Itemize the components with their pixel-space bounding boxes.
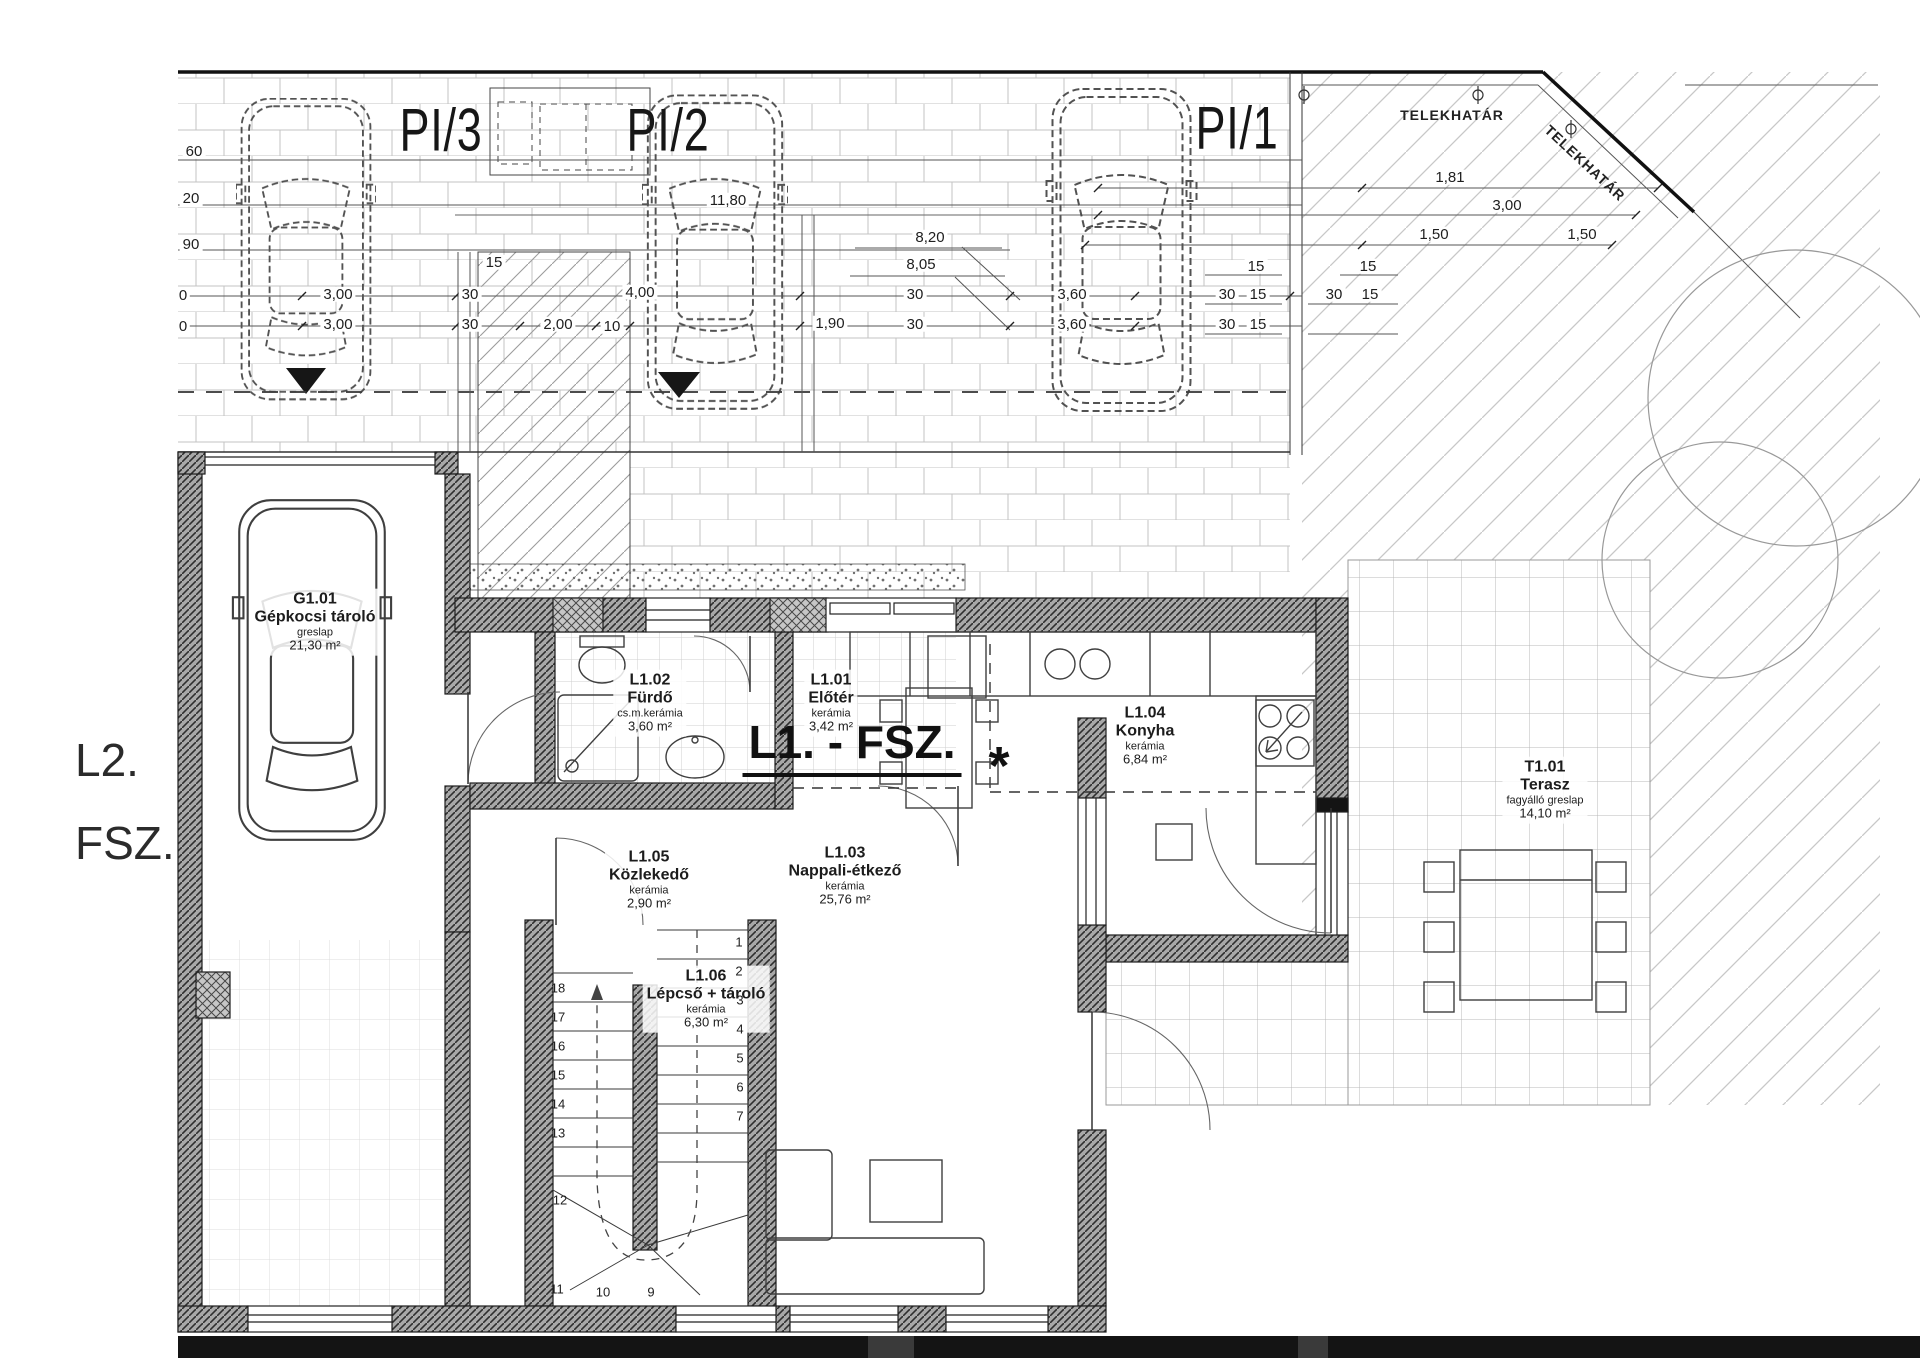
floor-plan-page: PI/3 PI/2 PI/1 TELEKHATÁR TELEKHATÁR L1.… (0, 0, 1920, 1358)
stair-step-number: 18 (551, 982, 565, 995)
stair-step-number: 17 (551, 1011, 565, 1024)
property-boundary-label: TELEKHATÁR (1400, 107, 1504, 123)
dimension-label: 30 (904, 317, 927, 332)
room-area: 21,30 m² (255, 639, 376, 654)
dimension-label: 1,50 (1416, 227, 1451, 242)
stair-step-number: 10 (596, 1286, 610, 1299)
dimension-label: 30 (459, 287, 482, 302)
stair-step-number: 13 (551, 1127, 565, 1140)
dimension-label: 3,60 (1054, 317, 1089, 332)
room-label-terrace: T1.01 Terasz fagyálló greslap 14,10 m² (1502, 757, 1587, 824)
stair-step-number: 14 (551, 1098, 565, 1111)
dimension-label: 3,60 (1054, 287, 1089, 302)
dimension-label: 2,00 (540, 317, 575, 332)
room-label-kitchen: L1.04 Konyha kerámia 6,84 m² (1112, 703, 1179, 770)
dimension-label: 4,00 (622, 285, 657, 300)
dimension-label: 15 (483, 255, 506, 270)
room-name: Gépkocsi tároló (255, 609, 376, 627)
room-label-garage: G1.01 Gépkocsi tároló greslap 21,30 m² (251, 589, 380, 656)
dimension-label: 30 (1216, 317, 1239, 332)
stair-step-number: 3 (736, 994, 743, 1007)
room-area: 3,60 m² (617, 720, 682, 735)
room-name: Lépcső + tároló (647, 986, 766, 1004)
room-code: T1.01 (1506, 759, 1583, 777)
room-name: Előtér (808, 690, 853, 708)
room-code: L1.04 (1116, 705, 1175, 723)
dimension-label: 1,90 (812, 316, 847, 331)
stair-step-number: 11 (550, 1283, 564, 1296)
dimension-label: 30 (904, 287, 927, 302)
dimension-label: 90 (180, 237, 203, 252)
room-label-living-dining: L1.03 Nappali-étkező kerámia 25,76 m² (785, 843, 906, 910)
room-code: L1.01 (808, 672, 853, 690)
dimension-label: 8,05 (903, 257, 938, 272)
room-area: 3,42 m² (808, 720, 853, 735)
stair-step-number: 15 (551, 1069, 565, 1082)
parking-label-pi3: PI/3 (399, 96, 482, 165)
stair-step-number: 4 (736, 1023, 743, 1036)
dimension-label: 20 (180, 191, 203, 206)
stair-step-number: 9 (647, 1286, 654, 1299)
dimension-label: 15 (1247, 317, 1270, 332)
stair-step-number: 7 (736, 1110, 743, 1123)
kitchen-asterisk-marker: * (988, 735, 1009, 797)
stair-step-number: 2 (735, 965, 742, 978)
room-name: Fürdő (617, 690, 682, 708)
dimension-label: 60 (183, 144, 206, 159)
dimension-label: 3,00 (1489, 198, 1524, 213)
stair-step-number: 12 (553, 1194, 567, 1207)
room-label-hall: L1.01 Előtér kerámia 3,42 m² (804, 670, 857, 737)
room-area: 25,76 m² (789, 893, 902, 908)
dimension-label: 30 (1216, 287, 1239, 302)
dimension-label: 8,20 (912, 230, 947, 245)
dimension-label: 15 (1357, 259, 1380, 274)
dimension-label: 15 (1245, 259, 1268, 274)
dimension-label: 30 (1323, 287, 1346, 302)
room-area: 2,90 m² (609, 897, 689, 912)
room-name: Közlekedő (609, 867, 689, 885)
room-name: Konyha (1116, 723, 1175, 741)
dimension-label: 11,80 (707, 193, 749, 208)
dimension-label: 0 (176, 288, 190, 303)
dimension-label: 1,50 (1564, 227, 1599, 242)
dimension-label: 15 (1359, 287, 1382, 302)
margin-label-l2: L2. (75, 733, 139, 787)
room-name: Terasz (1506, 777, 1583, 795)
room-name: Nappali-étkező (789, 863, 902, 881)
dimension-label: 0 (176, 319, 190, 334)
dimension-label: 30 (459, 317, 482, 332)
room-code: L1.02 (617, 672, 682, 690)
room-area: 6,84 m² (1116, 753, 1175, 768)
parking-label-pi1: PI/1 (1195, 94, 1278, 163)
scan-edge-strip (178, 1336, 1920, 1358)
room-code: L1.06 (647, 968, 766, 986)
stair-step-number: 6 (736, 1081, 743, 1094)
stair-step-number: 16 (551, 1040, 565, 1053)
room-area: 6,30 m² (647, 1016, 766, 1031)
ground-surfaces (178, 72, 1880, 1306)
dimension-label: 10 (601, 319, 624, 334)
margin-label-fsz: FSZ. (75, 816, 175, 870)
stair-step-number: 5 (736, 1052, 743, 1065)
dimension-label: 1,81 (1432, 170, 1467, 185)
room-label-stairs-storage: L1.06 Lépcső + tároló kerámia 6,30 m² (643, 966, 770, 1033)
room-code: L1.03 (789, 845, 902, 863)
room-label-corridor: L1.05 Közlekedő kerámia 2,90 m² (605, 847, 693, 914)
room-label-bathroom: L1.02 Fürdő cs.m.kerámia 3,60 m² (613, 670, 686, 737)
stair-step-number: 1 (735, 936, 742, 949)
floor-plan-drawing (0, 0, 1920, 1358)
room-area: 14,10 m² (1506, 807, 1583, 822)
dimension-label: 3,00 (320, 287, 355, 302)
dimension-label: 3,00 (320, 317, 355, 332)
room-code: G1.01 (255, 591, 376, 609)
parking-label-pi2: PI/2 (626, 96, 709, 165)
dimension-label: 15 (1247, 287, 1270, 302)
room-code: L1.05 (609, 849, 689, 867)
